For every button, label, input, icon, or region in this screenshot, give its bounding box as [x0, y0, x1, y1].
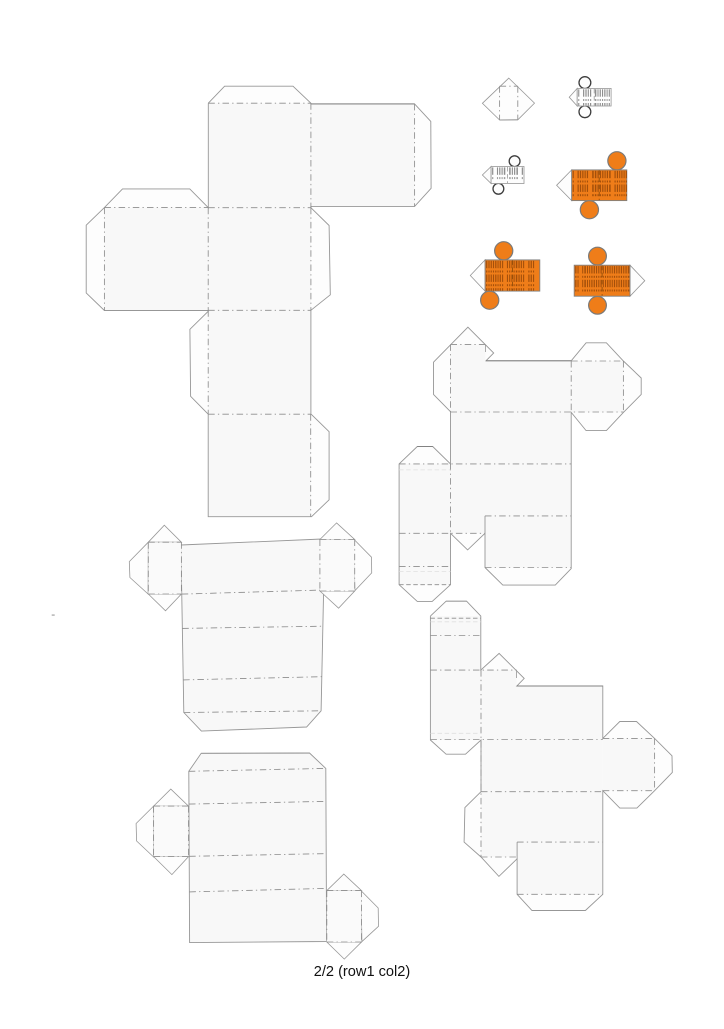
svg-text:2/2 (row1 col2): 2/2 (row1 col2) — [314, 964, 411, 980]
